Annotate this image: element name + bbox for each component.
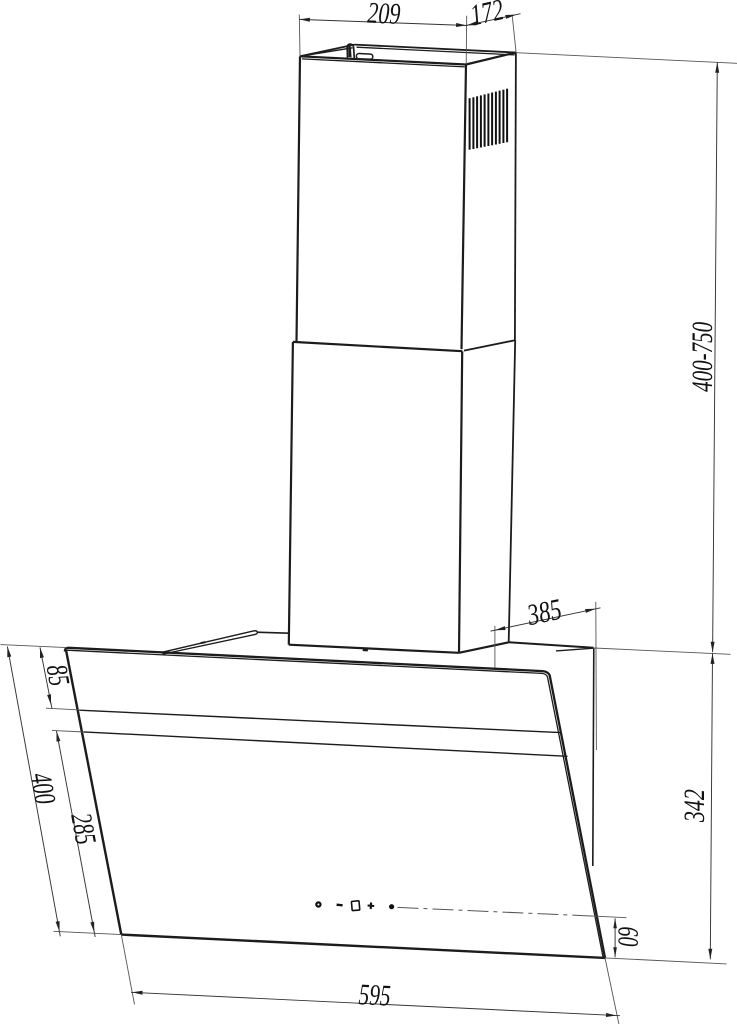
svg-text:172: 172 xyxy=(467,0,506,32)
svg-text:400: 400 xyxy=(24,770,62,806)
svg-text:595: 595 xyxy=(358,978,392,1012)
svg-text:209: 209 xyxy=(367,0,401,31)
svg-text:400-750: 400-750 xyxy=(686,322,719,392)
svg-text:60: 60 xyxy=(612,927,645,947)
svg-text:385: 385 xyxy=(524,593,565,633)
svg-text:85: 85 xyxy=(40,662,76,689)
svg-text:285: 285 xyxy=(64,811,102,847)
svg-text:342: 342 xyxy=(678,789,711,823)
